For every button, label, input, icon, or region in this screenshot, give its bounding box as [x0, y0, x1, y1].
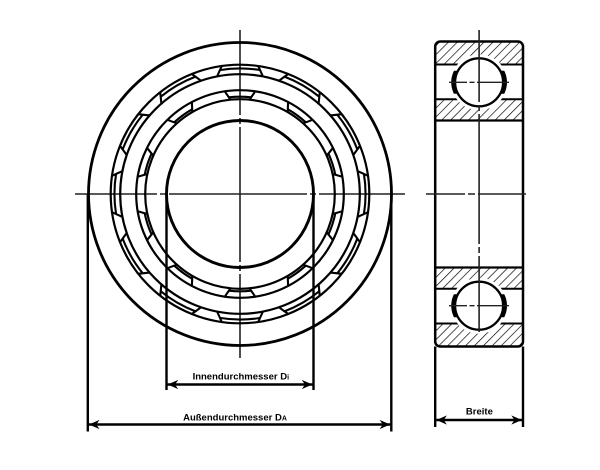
svg-text:Außendurchmesser DA: Außendurchmesser DA [183, 412, 287, 423]
svg-text:Breite: Breite [466, 406, 493, 417]
svg-text:Innendurchmesser Di: Innendurchmesser Di [193, 372, 289, 383]
